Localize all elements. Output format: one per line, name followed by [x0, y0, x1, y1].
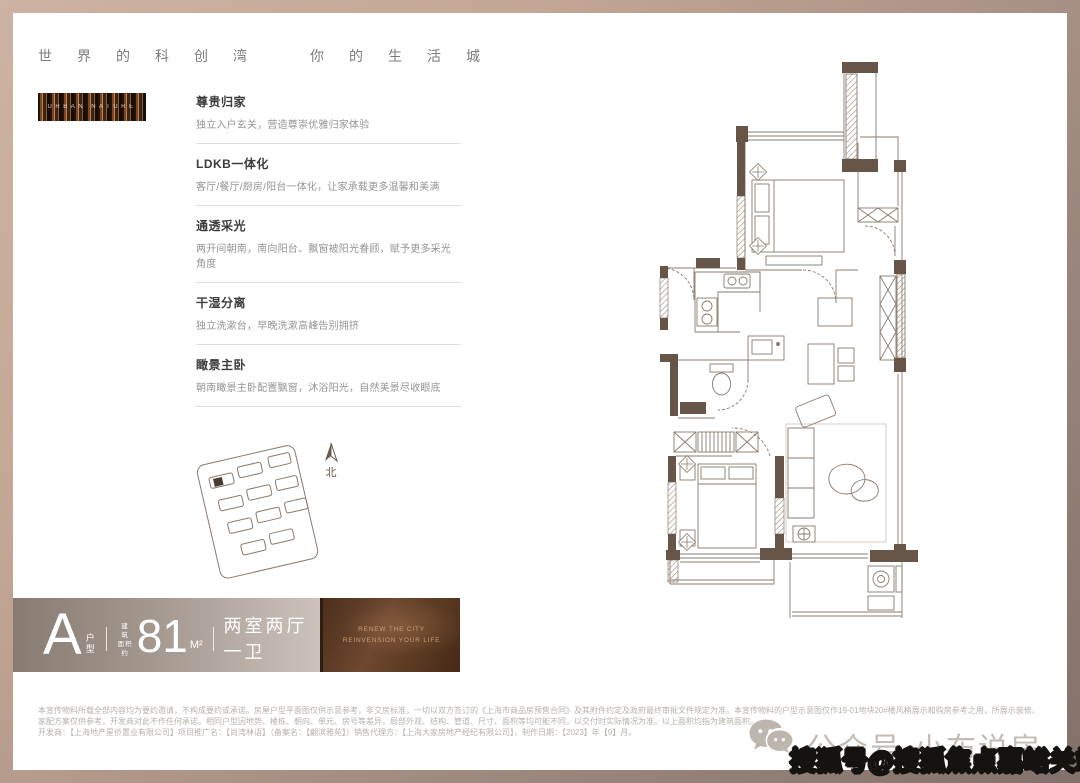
area-label-bottom: 面积约	[116, 640, 133, 658]
feature-desc: 客厅/餐厅/厨房/阳台一体化，让家承载更多温馨和美满	[196, 178, 461, 193]
feature-desc: 独立入户玄关，营造尊崇优雅归家体验	[196, 116, 461, 131]
feature-desc: 两开间朝南，南向阳台、飘窗被阳光眷顾，赋予更多采光角度	[196, 240, 461, 270]
header-slogan: 世界的科创湾 你的生活城	[38, 46, 505, 66]
wechat-icon	[748, 718, 794, 763]
feature-title: LDKB一体化	[196, 155, 461, 172]
feature-title: 瞰景主卧	[196, 356, 461, 373]
area-unit: M²	[190, 639, 203, 651]
room-layout: 两室两厅一卫	[223, 612, 320, 664]
panel-line1: RENEW THE CITY	[358, 624, 425, 635]
feature-title: 干湿分离	[196, 294, 461, 311]
brand-label: URBAN NATURE	[48, 104, 137, 110]
sohu-watermark-text: 搜狐号@搜狐焦点嘉峪关站	[790, 741, 1080, 778]
area-label-top: 建 筑	[116, 622, 133, 640]
slogan-right: 你的生活城	[310, 46, 505, 66]
unit-type-info: A 户 型 建 筑 面积约 81 M² 两室两厅一卫	[13, 598, 320, 672]
panel-line2: REINVENSION YOUR LIFE	[343, 635, 441, 646]
feature-item: 瞰景主卧 朝南瞰景主卧配置飘窗，沐浴阳光，自然美景尽收眼底	[196, 345, 461, 407]
divider	[213, 627, 214, 651]
feature-desc: 朝南瞰景主卧配置飘窗，沐浴阳光，自然美景尽收眼底	[196, 379, 461, 394]
brand-thumbnail: URBAN NATURE	[38, 93, 146, 121]
divider	[106, 627, 107, 651]
highlighted-building	[213, 477, 224, 487]
feature-item: 干湿分离 独立洗漱台，早晚洗漱高峰告别拥挤	[196, 283, 461, 345]
feature-title: 尊贵归家	[196, 93, 461, 110]
site-plan: 北	[191, 431, 351, 591]
slogan-left: 世界的科创湾	[38, 46, 272, 66]
feature-list: 尊贵归家 独立入户玄关，营造尊崇优雅归家体验 LDKB一体化 客厅/餐厅/厨房/…	[196, 93, 461, 407]
feature-title: 通透采光	[196, 217, 461, 234]
area-value: 81	[137, 613, 188, 659]
feature-desc: 独立洗漱台，早晚洗漱高峰告别拥挤	[196, 317, 461, 332]
floor-plan-drawing	[640, 60, 930, 630]
poster-canvas: { "header": { "left": "世界的科创湾", "right":…	[0, 0, 1080, 783]
unit-letter-suffix: 户 型	[86, 633, 96, 656]
unit-suffix-bottom: 型	[86, 644, 96, 655]
feature-item: LDKB一体化 客厅/餐厅/厨房/阳台一体化，让家承载更多温馨和美满	[196, 144, 461, 206]
north-label: 北	[326, 466, 337, 479]
floor-plan	[640, 60, 930, 635]
site-plan-drawing: 北	[191, 431, 351, 586]
unit-type-bar: A 户 型 建 筑 面积约 81 M² 两室两厅一卫 RENEW THE CIT…	[13, 598, 460, 672]
north-arrow-icon	[325, 443, 337, 461]
feature-item: 尊贵归家 独立入户玄关，营造尊崇优雅归家体验	[196, 93, 461, 144]
brown-panel: RENEW THE CITY REINVENSION YOUR LIFE	[320, 598, 460, 672]
poster-page: 世界的科创湾 你的生活城 URBAN NATURE 尊贵归家 独立入户玄关，营造…	[13, 13, 1067, 770]
area-label: 建 筑 面积约	[116, 622, 133, 658]
unit-suffix-top: 户	[86, 633, 96, 644]
feature-item: 通透采光 两开间朝南，南向阳台、飘窗被阳光眷顾，赋予更多采光角度	[196, 206, 461, 283]
unit-letter: A	[43, 606, 82, 664]
